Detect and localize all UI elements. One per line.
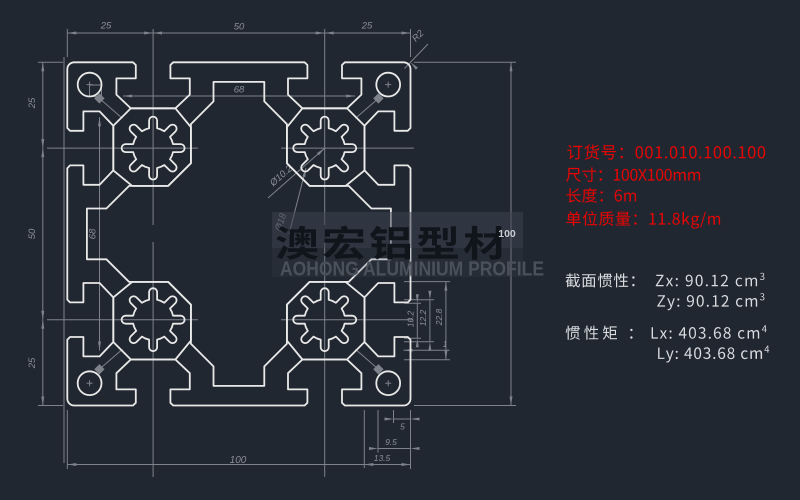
- svg-text:10.2: 10.2: [406, 310, 416, 327]
- svg-text:50: 50: [27, 228, 38, 239]
- svg-text:25: 25: [361, 21, 373, 32]
- svg-text:100: 100: [230, 455, 247, 466]
- svg-text:5: 5: [400, 422, 405, 432]
- svg-text:1: 1: [443, 339, 448, 349]
- svg-text:25: 25: [100, 21, 112, 32]
- svg-text:25: 25: [27, 97, 38, 109]
- svg-text:100: 100: [498, 228, 516, 240]
- svg-text:9.5: 9.5: [385, 437, 397, 447]
- svg-text:68: 68: [88, 228, 99, 239]
- svg-text:68: 68: [234, 85, 245, 96]
- svg-text:13.5: 13.5: [374, 453, 391, 463]
- svg-text:50: 50: [234, 22, 245, 33]
- svg-text:25: 25: [27, 357, 38, 369]
- svg-text:AOHONG ALUMINIUM PROFILE: AOHONG ALUMINIUM PROFILE: [280, 259, 544, 281]
- svg-text:22.8: 22.8: [434, 308, 444, 326]
- svg-text:12.2: 12.2: [418, 309, 428, 326]
